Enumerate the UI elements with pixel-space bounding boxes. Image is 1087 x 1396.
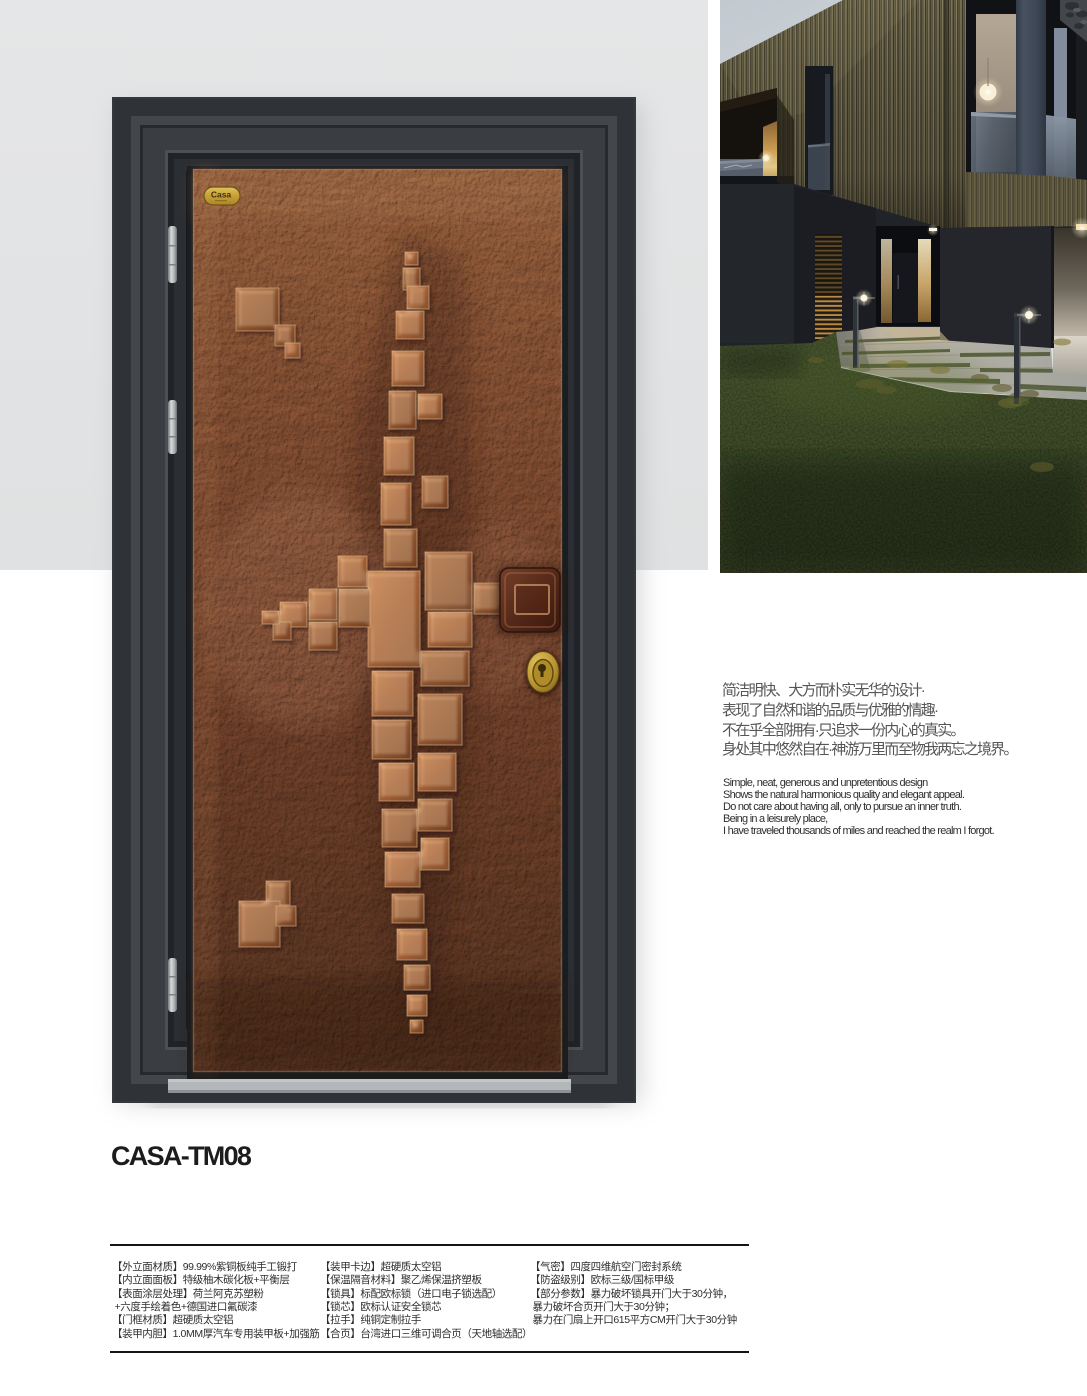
- svg-text:Casa: Casa: [211, 190, 232, 200]
